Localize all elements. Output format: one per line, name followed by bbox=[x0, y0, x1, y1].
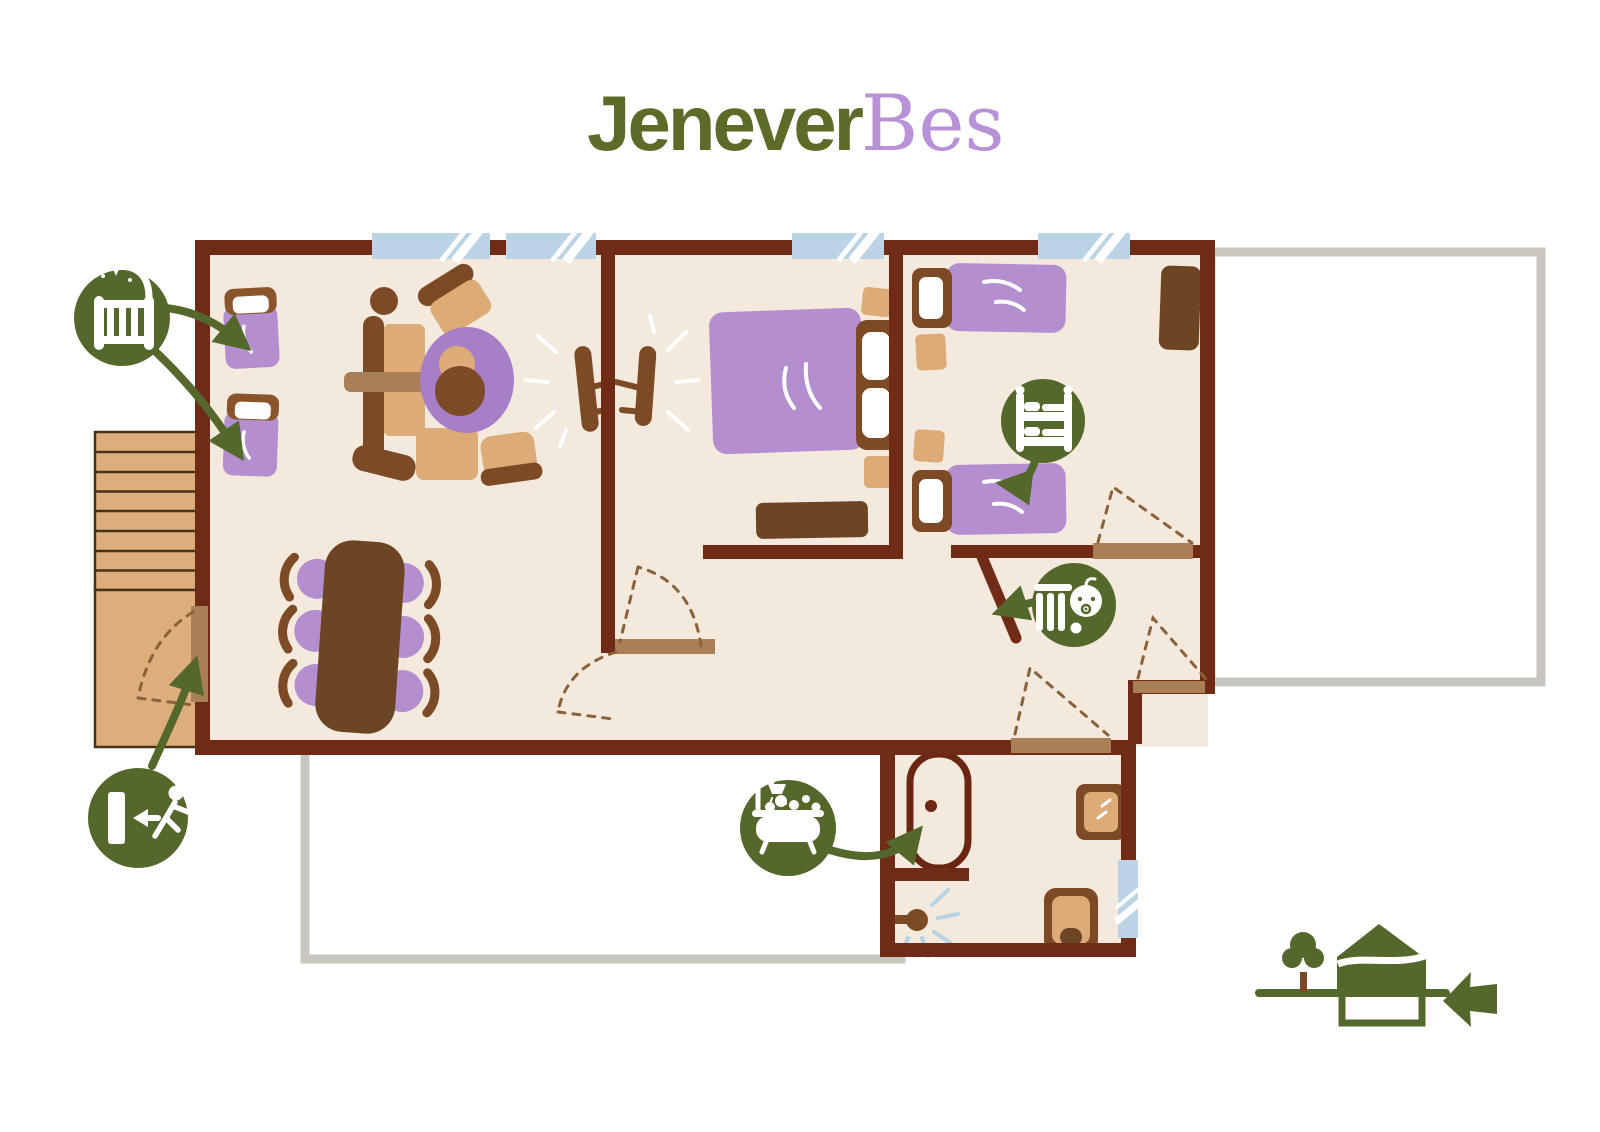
door-bathroom bbox=[1011, 738, 1111, 753]
pillow bbox=[862, 332, 890, 380]
tree-icon bbox=[1282, 932, 1324, 992]
terrace-right-outline bbox=[1211, 252, 1541, 682]
sofa-armrest bbox=[344, 372, 426, 392]
double-bed bbox=[709, 307, 902, 454]
rug bbox=[420, 327, 514, 433]
window bbox=[792, 231, 884, 261]
pillow bbox=[862, 388, 890, 438]
pillow bbox=[919, 277, 943, 319]
floor-level-indicator bbox=[1255, 924, 1497, 1027]
wall-bedroom-divider bbox=[889, 247, 903, 553]
sink bbox=[1076, 784, 1126, 840]
house-cross-section-icon bbox=[1337, 924, 1426, 1023]
single-bed-bottom bbox=[912, 463, 1067, 535]
single-bed-top bbox=[912, 263, 1067, 333]
window bbox=[1038, 231, 1130, 261]
lounge-chair bbox=[475, 430, 543, 487]
wall-hall-east-stub bbox=[1128, 694, 1142, 744]
wardrobe bbox=[1159, 265, 1202, 350]
wall-bedroom1-south bbox=[703, 545, 903, 559]
bathtub bbox=[910, 754, 968, 868]
level-arrow-icon bbox=[1443, 972, 1497, 1027]
window-bathroom bbox=[1116, 860, 1140, 938]
door-hall-east bbox=[1133, 681, 1205, 693]
wall-shower-stub bbox=[895, 868, 969, 881]
wall-right bbox=[1200, 240, 1215, 692]
door-exit bbox=[191, 606, 208, 702]
toilet bbox=[1044, 888, 1098, 952]
wall-bathroom-bottom bbox=[880, 943, 1136, 957]
floor-plan-drawing bbox=[0, 0, 1600, 1132]
pillow bbox=[919, 479, 943, 523]
cot-1 bbox=[222, 287, 280, 370]
wall-living-divider bbox=[601, 247, 615, 653]
drain bbox=[925, 800, 937, 812]
dresser bbox=[756, 501, 869, 539]
coffee-table bbox=[435, 366, 485, 416]
nightstand bbox=[861, 287, 894, 318]
floor-plan-page: JeneverBes bbox=[0, 0, 1600, 1132]
nightstand bbox=[913, 429, 945, 463]
window bbox=[372, 231, 490, 261]
nightstand bbox=[915, 333, 947, 371]
dining-table bbox=[313, 538, 406, 735]
side-table bbox=[370, 287, 398, 315]
window bbox=[506, 231, 596, 261]
wall-bottom bbox=[195, 740, 1135, 755]
door-bedroom2 bbox=[1093, 543, 1193, 559]
